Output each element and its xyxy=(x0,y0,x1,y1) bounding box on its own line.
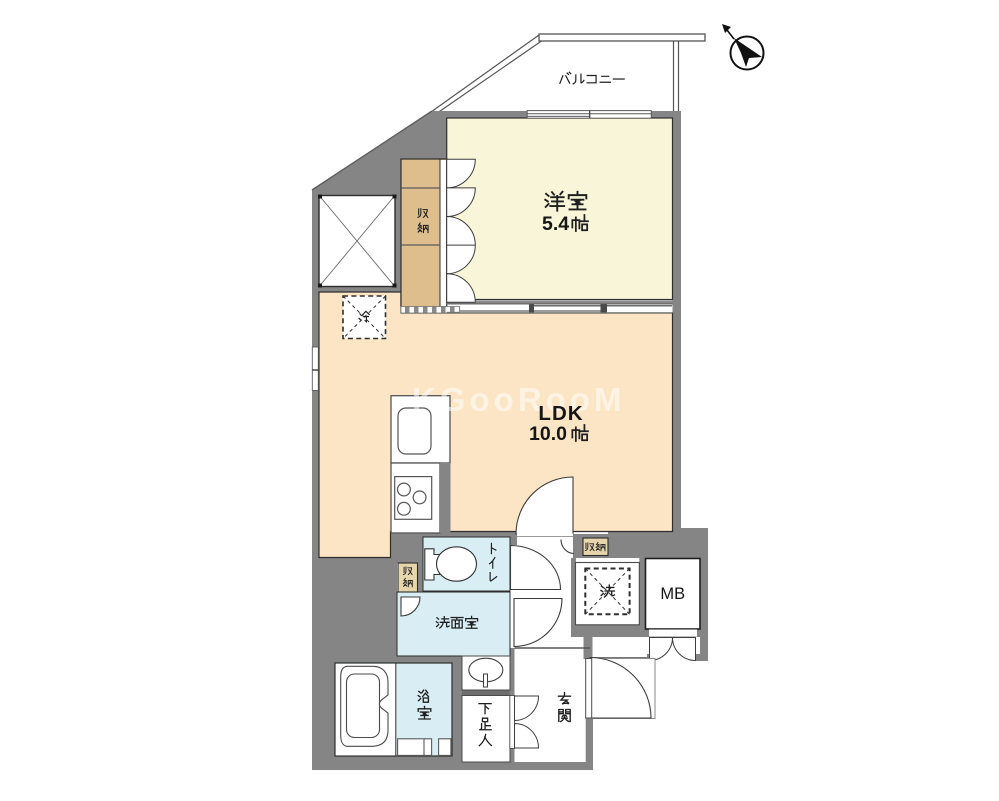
svg-text:10.0: 10.0 xyxy=(529,423,567,445)
svg-text:5.4: 5.4 xyxy=(542,213,569,235)
svg-text:LDK: LDK xyxy=(538,402,583,425)
svg-text:KGooRooM: KGooRooM xyxy=(412,381,625,418)
svg-text:MB: MB xyxy=(660,585,685,603)
